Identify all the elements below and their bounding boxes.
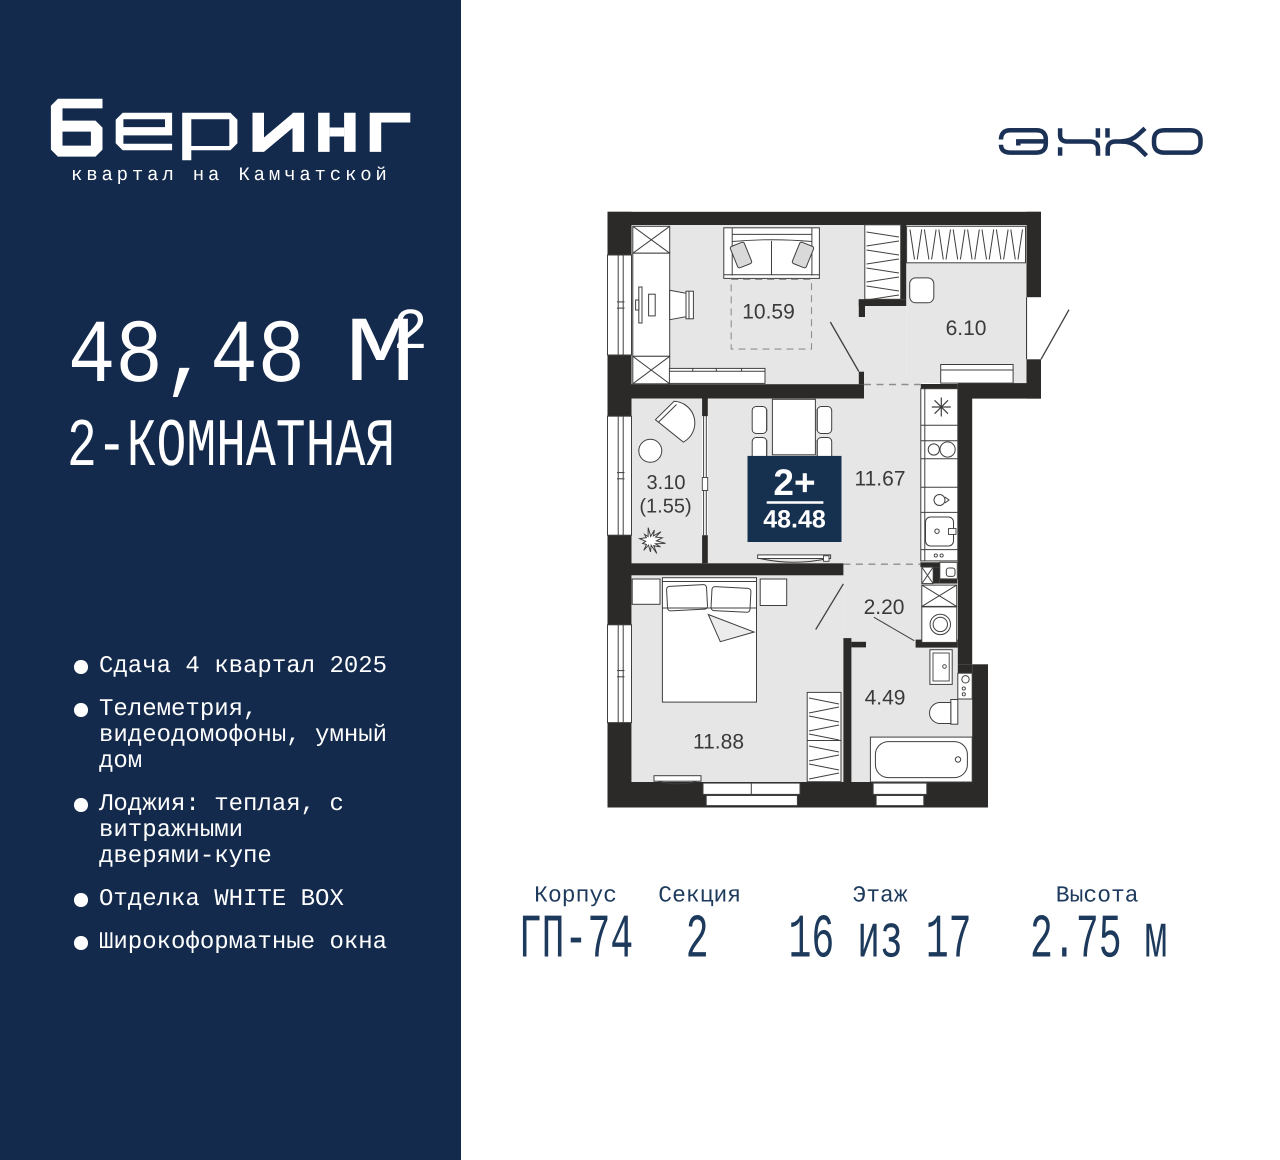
svg-text:2+: 2+ xyxy=(773,462,815,503)
svg-text:6.10: 6.10 xyxy=(946,317,987,340)
svg-text:2.20: 2.20 xyxy=(864,596,905,619)
svg-text:11.88: 11.88 xyxy=(693,731,744,754)
svg-text:2: 2 xyxy=(686,904,709,975)
svg-text:16 из 17: 16 из 17 xyxy=(788,904,971,975)
svg-text:10.59: 10.59 xyxy=(742,301,795,324)
svg-text:(1.55): (1.55) xyxy=(639,496,691,518)
svg-text:48.48: 48.48 xyxy=(763,506,826,534)
svg-text:11.67: 11.67 xyxy=(855,468,906,491)
svg-text:2.75 м: 2.75 м xyxy=(1030,904,1167,975)
svg-text:3.10: 3.10 xyxy=(647,472,686,494)
svg-text:ГП-74: ГП-74 xyxy=(519,904,633,975)
svg-text:4.49: 4.49 xyxy=(865,687,906,710)
